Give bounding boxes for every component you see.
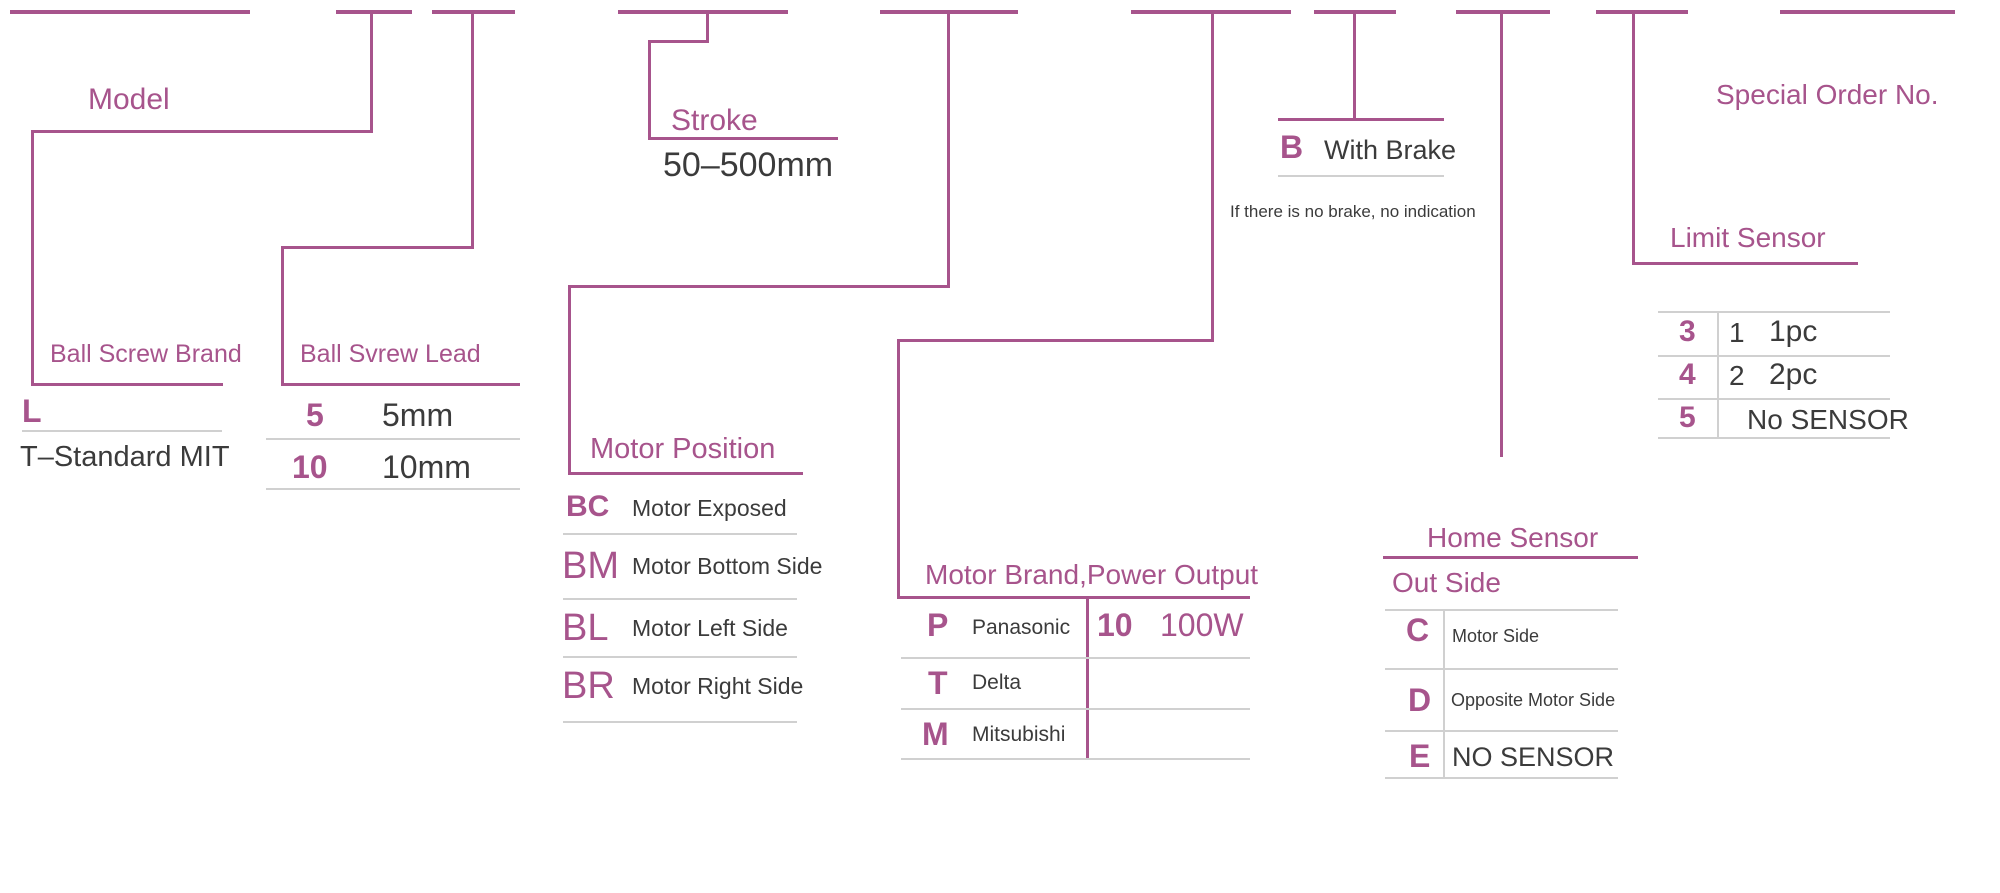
motorbrand-title: Motor Brand,Power Output: [925, 560, 1258, 589]
limitsensor-title: Limit Sensor: [1670, 223, 1826, 252]
lead-row-line: [266, 438, 520, 440]
connector-motorpos-vertical-down: [568, 285, 571, 475]
limitsensor-desc-3: 1pc: [1769, 316, 1817, 348]
limitsensor-row-line: [1658, 398, 1890, 400]
connector-stroke-jog: [648, 40, 709, 43]
motorbrand-desc-t: Delta: [972, 672, 1021, 694]
connector-brand-vertical-top: [370, 10, 373, 133]
connector-motorpos-vertical-top: [947, 10, 950, 288]
connector-stroke-vertical-down: [648, 40, 651, 140]
motorbrand-code-m: M: [922, 718, 949, 752]
limitsensor-code-4: 4: [1679, 359, 1696, 391]
motorbrand-title-underline: [897, 596, 1250, 599]
power-value: 100W: [1160, 609, 1244, 643]
homesensor-row-line: [1385, 730, 1618, 732]
motorbrand-code-p: P: [927, 609, 948, 643]
code-slot-model: [10, 10, 250, 14]
limitsensor-pointer-line: [1632, 262, 1858, 265]
motorpos-title: Motor Position: [590, 434, 775, 464]
homesensor-column-divider: [1443, 609, 1445, 777]
connector-motorpos-horizontal: [568, 285, 950, 288]
lead-desc-5: 5mm: [382, 399, 453, 433]
brake-desc: With Brake: [1324, 136, 1456, 164]
brake-row-line: [1278, 175, 1444, 177]
homesensor-title-underline: [1383, 556, 1638, 559]
limitsensor-row-line: [1658, 355, 1890, 357]
lead-title: Ball Svrew Lead: [300, 341, 481, 367]
lead-code-10: 10: [292, 451, 328, 485]
motorpos-title-underline: [568, 472, 803, 475]
stroke-title: Stroke: [671, 105, 758, 137]
homesensor-code-e: E: [1409, 740, 1430, 774]
limitsensor-row-line: [1658, 437, 1890, 439]
connector-lead-horizontal: [281, 246, 474, 249]
motorpos-row-line: [563, 533, 797, 535]
motorbrand-row-line: [901, 758, 1250, 760]
homesensor-row-line: [1385, 609, 1618, 611]
motorpos-row-line: [563, 721, 797, 723]
brand-row-line: [22, 430, 222, 432]
lead-desc-10: 10mm: [382, 451, 471, 485]
brake-code: B: [1280, 131, 1303, 165]
motorbrand-desc-p: Panasonic: [972, 617, 1070, 639]
homesensor-title: Home Sensor: [1427, 523, 1598, 552]
motorbrand-row-line: [901, 708, 1250, 710]
code-slot-limit-sensor: [1596, 10, 1688, 14]
brake-note: If there is no brake, no indication: [1230, 203, 1476, 221]
connector-limitsensor-vertical: [1632, 10, 1635, 265]
brand-title-underline: [31, 383, 223, 386]
motorpos-code-br: BR: [562, 667, 615, 707]
power-code: 10: [1097, 609, 1133, 643]
motorpos-desc-br: Motor Right Side: [632, 674, 803, 698]
connector-lead-vertical-top: [471, 10, 474, 249]
motorbrand-code-t: T: [928, 667, 948, 701]
motorbrand-column-divider: [1086, 596, 1089, 758]
code-slot-stroke: [618, 10, 788, 14]
homesensor-desc-c: Motor Side: [1452, 627, 1539, 646]
limitsensor-code-5: 5: [1679, 402, 1696, 434]
connector-motorbrand-vertical-down: [897, 339, 900, 599]
connector-brand-horizontal: [31, 130, 373, 133]
homesensor-subtitle: Out Side: [1392, 568, 1501, 597]
model-label: Model: [88, 84, 170, 116]
code-slot-screw-brand: [336, 10, 412, 14]
motorpos-code-bl: BL: [562, 609, 608, 649]
motorpos-desc-bl: Motor Left Side: [632, 616, 788, 640]
connector-motorbrand-vertical-top: [1211, 10, 1214, 342]
lead-code-5: 5: [306, 399, 324, 433]
brake-pointer-line: [1278, 118, 1444, 121]
code-slot-special-order: [1780, 10, 1955, 14]
homesensor-desc-e: NO SENSOR: [1452, 743, 1614, 771]
limitsensor-desc-4: 2pc: [1769, 359, 1817, 391]
homesensor-row-line: [1385, 777, 1618, 779]
connector-brake-vertical: [1353, 10, 1356, 121]
motorpos-desc-bc: Motor Exposed: [632, 496, 787, 520]
limitsensor-qty-4: 2: [1729, 361, 1745, 390]
brand-desc: T–Standard MIT: [20, 442, 230, 472]
homesensor-desc-d: Opposite Motor Side: [1451, 691, 1615, 710]
stroke-range: 50–500mm: [663, 148, 833, 184]
limitsensor-qty-3: 1: [1729, 318, 1745, 347]
connector-motorbrand-horizontal: [897, 339, 1214, 342]
motorpos-row-line: [563, 656, 797, 658]
brand-code: L: [22, 395, 42, 429]
limitsensor-code-3: 3: [1679, 316, 1696, 348]
limitsensor-column-divider: [1717, 311, 1719, 437]
motorbrand-row-line: [901, 657, 1250, 659]
motorpos-code-bm: BM: [562, 547, 619, 587]
motorbrand-desc-m: Mitsubishi: [972, 724, 1065, 746]
connector-lead-vertical-down: [281, 246, 284, 386]
special-order-label: Special Order No.: [1716, 80, 1939, 109]
connector-stroke-vertical-top: [706, 10, 709, 43]
connector-brand-vertical-down: [31, 130, 34, 386]
ordering-code-diagram: Model Special Order No. Stroke 50–500mm …: [0, 0, 2000, 893]
homesensor-row-line: [1385, 668, 1618, 670]
motorpos-code-bc: BC: [566, 491, 609, 523]
motorpos-row-line: [563, 598, 797, 600]
limitsensor-row-line: [1658, 311, 1890, 313]
code-slot-home-sensor: [1456, 10, 1550, 14]
limitsensor-desc-5: No SENSOR: [1747, 405, 1909, 434]
lead-row-line: [266, 488, 520, 490]
connector-homesensor-vertical: [1500, 10, 1503, 457]
brand-title: Ball Screw Brand: [50, 341, 242, 367]
stroke-title-underline: [648, 137, 838, 140]
homesensor-code-c: C: [1406, 614, 1429, 648]
homesensor-code-d: D: [1408, 684, 1431, 718]
motorpos-desc-bm: Motor Bottom Side: [632, 554, 822, 578]
lead-title-underline: [281, 383, 520, 386]
